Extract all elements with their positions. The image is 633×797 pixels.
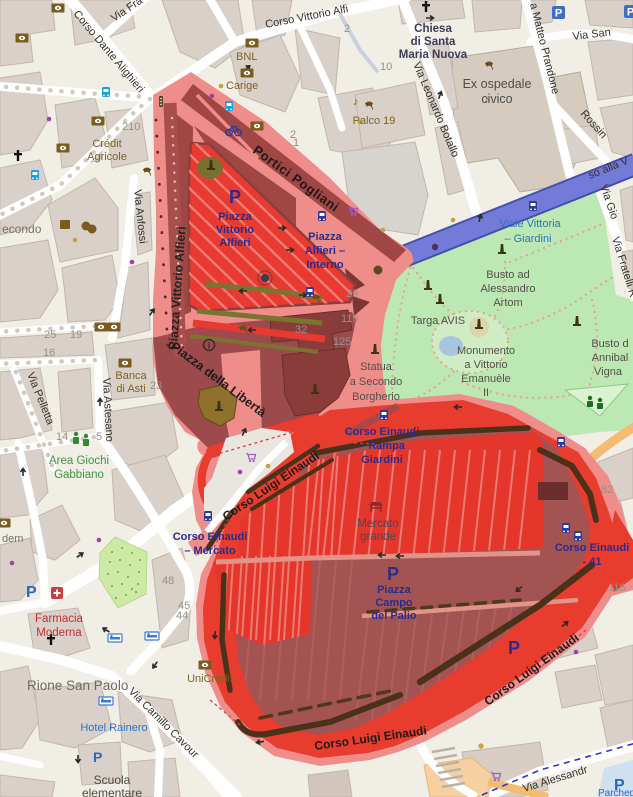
svg-text:P: P — [93, 749, 102, 765]
svg-text:Piazza: Piazza — [218, 211, 253, 223]
svg-text:5: 5 — [96, 431, 102, 443]
svg-text:116: 116 — [608, 582, 626, 594]
svg-text:Scuola: Scuola — [94, 773, 131, 787]
svg-text:elementare: elementare — [82, 786, 142, 797]
svg-text:II: II — [483, 387, 489, 399]
svg-text:Agricole: Agricole — [87, 151, 127, 163]
svg-text:14: 14 — [56, 431, 68, 443]
svg-text:Targa AVIS: Targa AVIS — [411, 315, 465, 327]
svg-text:2: 2 — [344, 23, 350, 35]
svg-text:– Mercato: – Mercato — [184, 545, 236, 557]
svg-text:48: 48 — [162, 575, 174, 587]
svg-text:i: i — [208, 341, 211, 351]
svg-text:Farmacia: Farmacia — [35, 613, 84, 625]
svg-text:Piazza: Piazza — [377, 584, 412, 596]
svg-text:UniCredit: UniCredit — [187, 673, 233, 685]
svg-text:Busto ad: Busto ad — [486, 269, 529, 281]
svg-text:Giardini: Giardini — [361, 454, 403, 466]
svg-text:Busto d: Busto d — [591, 338, 628, 350]
svg-text:16: 16 — [43, 347, 55, 359]
svg-text:P: P — [555, 8, 562, 20]
svg-text:Maria Nuova: Maria Nuova — [399, 49, 468, 61]
svg-text:Alfieri –: Alfieri – — [305, 245, 345, 257]
svg-text:Ex ospedale: Ex ospedale — [463, 77, 532, 91]
svg-text:Rione San Paolo: Rione San Paolo — [27, 678, 128, 693]
svg-text:P: P — [508, 638, 520, 658]
svg-text:♪: ♪ — [353, 96, 359, 108]
svg-text:P: P — [229, 187, 241, 207]
svg-text:P: P — [627, 7, 633, 19]
svg-text:Vigna: Vigna — [594, 366, 623, 378]
svg-text:P: P — [26, 584, 37, 601]
svg-text:Alessandro: Alessandro — [480, 283, 535, 295]
svg-text:Corso Einaudi: Corso Einaudi — [345, 426, 420, 438]
svg-text:Vittorio: Vittorio — [216, 224, 255, 236]
svg-text:a Secondo: a Secondo — [350, 376, 403, 388]
svg-text:82: 82 — [601, 484, 613, 496]
svg-text:econdo: econdo — [2, 222, 42, 236]
svg-text:1: 1 — [293, 137, 299, 149]
svg-text:di Santa: di Santa — [411, 36, 456, 48]
svg-text:Annibal: Annibal — [592, 352, 629, 364]
svg-text:19: 19 — [70, 329, 82, 341]
svg-text:dem: dem — [2, 533, 23, 545]
svg-text:di Asti: di Asti — [116, 383, 145, 395]
svg-text:del Palio: del Palio — [371, 610, 417, 622]
svg-text:Area Giochi: Area Giochi — [49, 455, 109, 467]
svg-text:P: P — [387, 564, 399, 584]
svg-text:Corso Einaudi: Corso Einaudi — [173, 531, 248, 543]
svg-text:Mercato: Mercato — [357, 518, 399, 530]
svg-text:Banca: Banca — [115, 370, 147, 382]
svg-text:Statua: Statua — [360, 361, 393, 373]
svg-text:Chiesa: Chiesa — [414, 23, 452, 35]
svg-text:civico: civico — [481, 92, 512, 106]
svg-text:Emanuèle: Emanuèle — [461, 373, 511, 385]
svg-text:a Vittorio: a Vittorio — [464, 359, 507, 371]
svg-text:125: 125 — [333, 336, 351, 348]
svg-text:Gabbiano: Gabbiano — [54, 469, 104, 481]
svg-text:Viale Vittoria: Viale Vittoria — [499, 218, 561, 230]
svg-text:Piazza: Piazza — [308, 231, 343, 243]
svg-text:25: 25 — [44, 329, 56, 341]
svg-text:Palco 19: Palco 19 — [353, 115, 396, 127]
svg-text:– Giardini: – Giardini — [504, 233, 551, 245]
svg-text:23: 23 — [150, 380, 162, 392]
svg-text:10: 10 — [380, 61, 392, 73]
svg-text:grande: grande — [360, 531, 396, 543]
svg-text:Interno: Interno — [306, 259, 344, 271]
svg-text:Campo: Campo — [375, 597, 413, 609]
svg-text:Alfieri: Alfieri — [219, 237, 250, 249]
svg-text:29: 29 — [346, 288, 358, 300]
svg-text:Hotel Rainero: Hotel Rainero — [80, 722, 147, 734]
svg-text:– Rampa: – Rampa — [359, 440, 406, 452]
svg-text:Parchegg: Parchegg — [598, 788, 633, 797]
svg-text:- 41: - 41 — [583, 556, 602, 568]
svg-text:119: 119 — [341, 313, 359, 325]
svg-text:210: 210 — [122, 121, 140, 133]
svg-text:Monumento: Monumento — [457, 345, 515, 357]
svg-text:Moderna: Moderna — [36, 627, 82, 639]
svg-text:32: 32 — [295, 324, 307, 336]
svg-text:Borgherio: Borgherio — [352, 391, 400, 403]
svg-text:Carige: Carige — [226, 80, 258, 92]
svg-text:Corso Einaudi: Corso Einaudi — [555, 542, 630, 554]
svg-text:Artom: Artom — [493, 297, 522, 309]
svg-text:44: 44 — [176, 610, 188, 622]
svg-text:Crédit: Crédit — [92, 138, 121, 150]
svg-text:BNL: BNL — [236, 51, 257, 63]
